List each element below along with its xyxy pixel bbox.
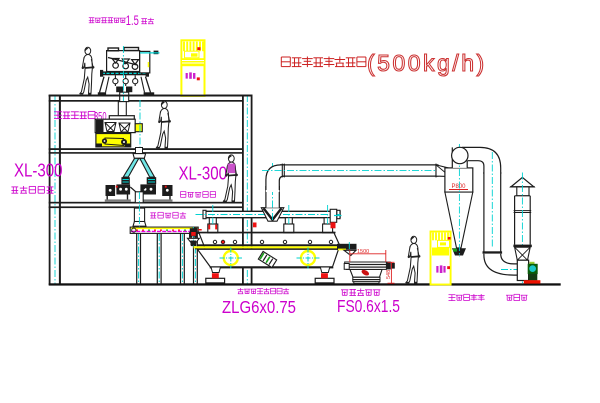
svg-text:548: 548 bbox=[386, 270, 392, 279]
svg-text:XL-300: XL-300 bbox=[14, 161, 63, 181]
svg-text:1.5: 1.5 bbox=[126, 13, 139, 28]
svg-text:1500: 1500 bbox=[357, 249, 369, 255]
svg-text:ZLG6x0.75: ZLG6x0.75 bbox=[222, 297, 296, 317]
svg-text:XL-300: XL-300 bbox=[179, 164, 228, 184]
svg-text:(500kg/h): (500kg/h) bbox=[367, 50, 487, 76]
svg-text:FS0.6x1.5: FS0.6x1.5 bbox=[337, 296, 400, 316]
